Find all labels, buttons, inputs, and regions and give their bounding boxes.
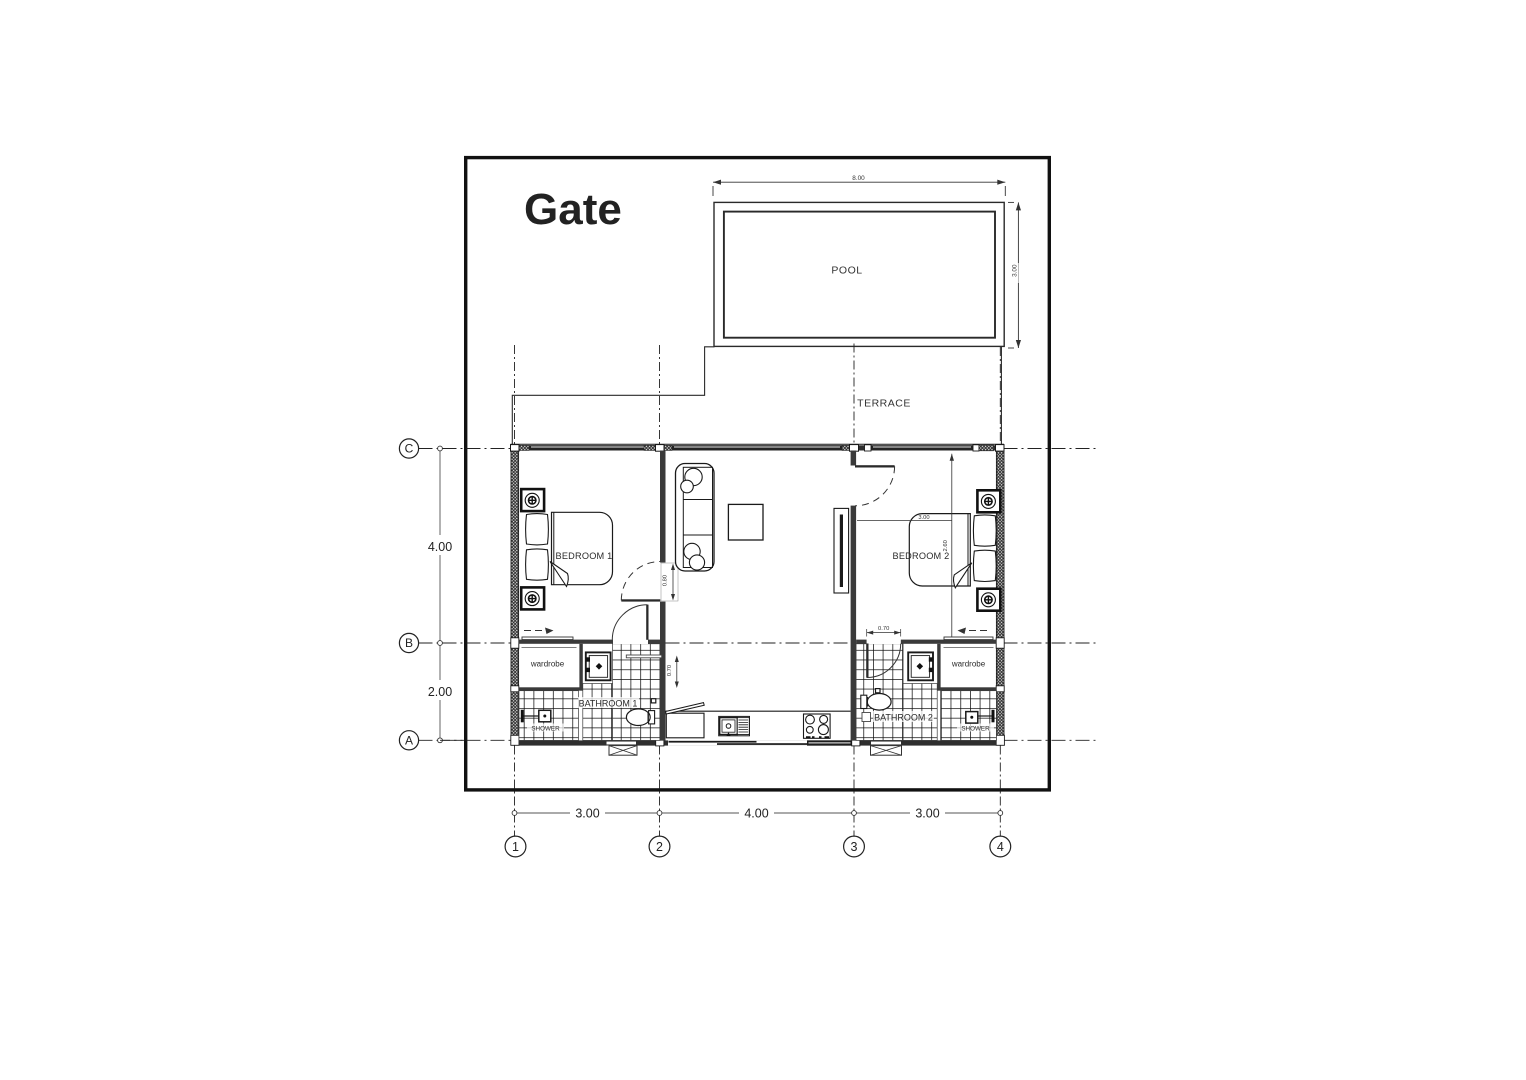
svg-text:Gate: Gate — [524, 185, 622, 234]
svg-text:A: A — [405, 734, 413, 748]
svg-text:BATHROOM 2: BATHROOM 2 — [874, 713, 933, 723]
svg-text:4: 4 — [997, 840, 1004, 854]
svg-text:SHOWER: SHOWER — [961, 726, 990, 733]
svg-text:POOL: POOL — [831, 265, 862, 277]
svg-text:3.00: 3.00 — [1012, 264, 1019, 277]
svg-text:2: 2 — [656, 840, 663, 854]
svg-text:TERRACE: TERRACE — [857, 398, 911, 410]
svg-text:0.70: 0.70 — [667, 665, 673, 676]
svg-text:3.00: 3.00 — [575, 807, 599, 821]
svg-text:wardrobe: wardrobe — [951, 660, 986, 669]
svg-text:4.00: 4.00 — [428, 540, 452, 554]
svg-text:3.00: 3.00 — [918, 515, 929, 521]
svg-text:2.60: 2.60 — [943, 540, 949, 551]
svg-text:C: C — [405, 442, 414, 456]
svg-text:0.70: 0.70 — [878, 626, 889, 632]
svg-text:BATHROOM 1: BATHROOM 1 — [579, 699, 638, 709]
svg-text:1: 1 — [512, 840, 519, 854]
svg-text:wardrobe: wardrobe — [530, 660, 565, 669]
svg-text:2.00: 2.00 — [428, 685, 452, 699]
svg-text:3: 3 — [851, 840, 858, 854]
svg-text:8.00: 8.00 — [852, 175, 865, 182]
svg-text:B: B — [405, 636, 413, 650]
svg-text:BEDROOM 2: BEDROOM 2 — [893, 551, 950, 561]
svg-text:4.00: 4.00 — [744, 807, 768, 821]
svg-text:SHOWER: SHOWER — [531, 726, 560, 733]
svg-text:3.00: 3.00 — [915, 807, 939, 821]
svg-text:0.80: 0.80 — [663, 575, 669, 586]
svg-text:BEDROOM 1: BEDROOM 1 — [556, 551, 613, 561]
